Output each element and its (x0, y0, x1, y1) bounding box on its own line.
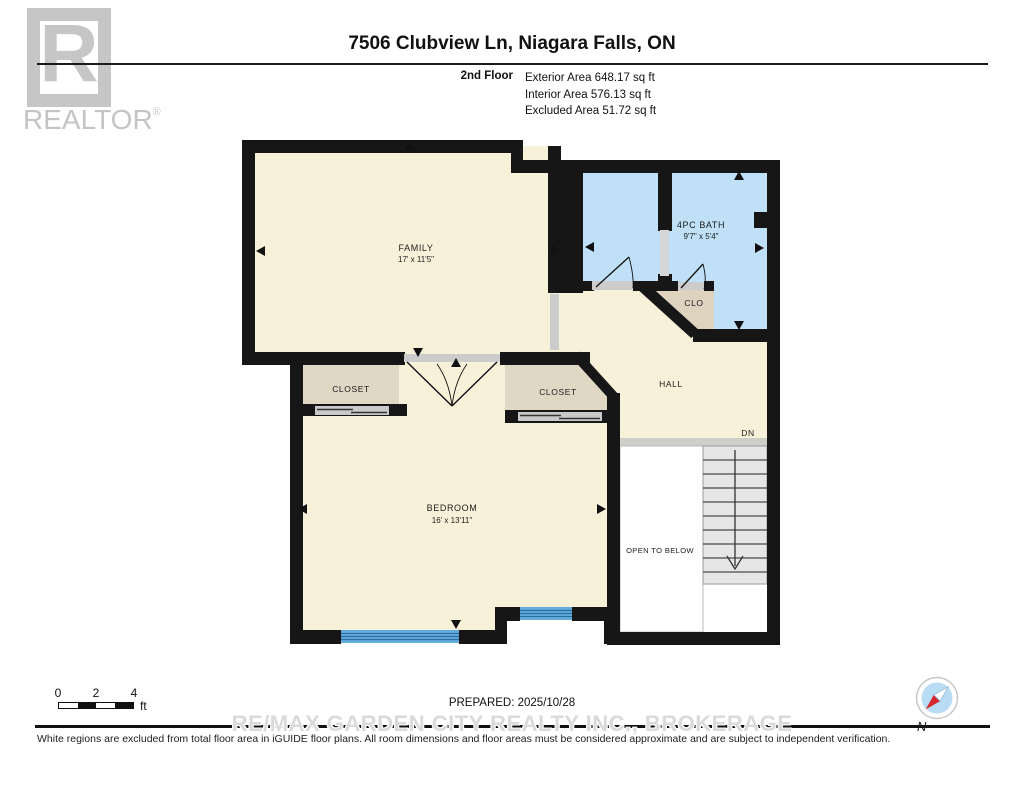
compass: N (911, 672, 963, 739)
disclaimer-text: White regions are excluded from total fl… (37, 733, 997, 745)
stair-landing-edge (620, 438, 767, 446)
bath-pocket-door (660, 230, 669, 276)
bedroom-dims: 16' x 13'11" (432, 516, 473, 525)
compass-icon: N (911, 672, 963, 734)
floor-plan-drawing: FAMILY 17' x 11'5" 4PC BATH 9'7" x 5'4" … (0, 0, 1024, 791)
stairs (620, 438, 767, 632)
bedroom-window-small (520, 607, 572, 620)
family-label: FAMILY (399, 243, 434, 253)
family-hall-opening (550, 294, 559, 350)
closet-left-bypass-door (315, 406, 389, 415)
bath-anteroom-area (578, 167, 663, 287)
bath-dims: 9'7" x 5'4" (684, 232, 719, 241)
open-to-below-area (620, 446, 703, 632)
bedroom-window-large (341, 630, 459, 643)
bedroom-label: BEDROOM (427, 503, 478, 513)
compass-north-label: N (917, 719, 927, 734)
family-dims: 17' x 11'5" (398, 255, 434, 264)
open-to-below-label: OPEN TO BELOW (626, 546, 694, 555)
closet-left-label: CLOSET (332, 384, 370, 394)
closet-right-bypass-door (518, 412, 602, 421)
bath-label: 4PC BATH (677, 220, 725, 230)
header-rule (37, 63, 988, 65)
floor-plan-page: R REALTOR® 7506 Clubview Ln, Niagara Fal… (0, 0, 1024, 791)
stairs-dn-label: DN (741, 428, 754, 438)
closet-right-label: CLOSET (539, 387, 577, 397)
clo-label: CLO (684, 298, 703, 308)
hall-label: HALL (659, 379, 683, 389)
